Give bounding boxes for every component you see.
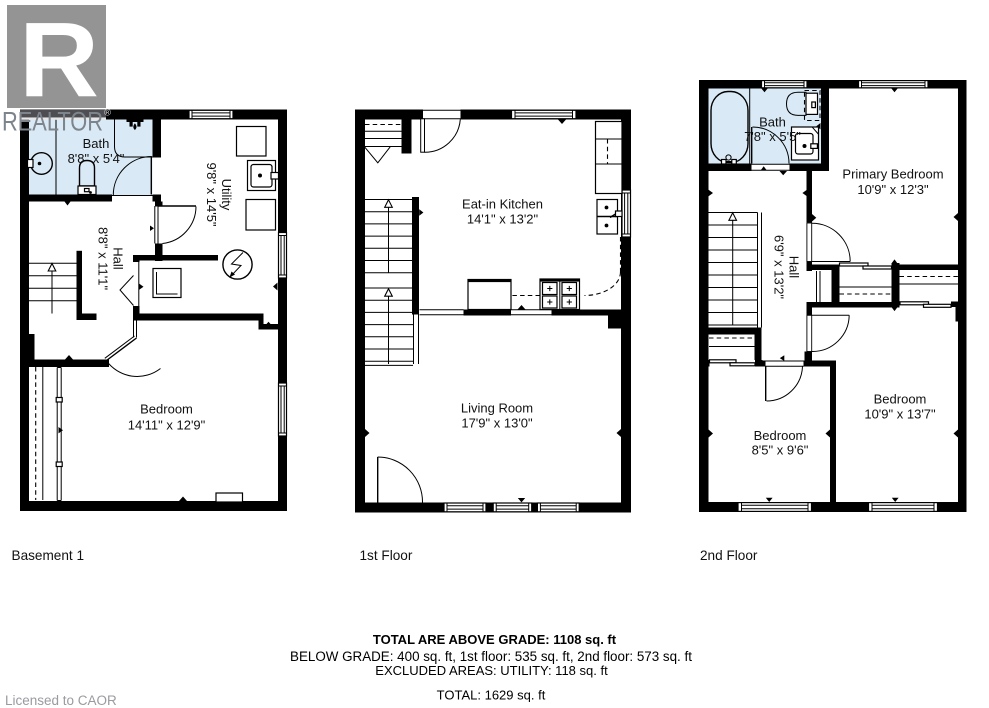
svg-text:1st Floor: 1st Floor — [360, 548, 413, 563]
svg-text:Bedroom: Bedroom — [140, 402, 193, 417]
svg-text:9'8" x 14'5": 9'8" x 14'5" — [204, 162, 219, 226]
svg-text:R: R — [19, 1, 99, 119]
svg-text:10'9" x 12'3": 10'9" x 12'3" — [857, 182, 929, 197]
svg-text:2nd Floor: 2nd Floor — [700, 548, 758, 563]
svg-text:Utility: Utility — [219, 179, 234, 211]
svg-text:®: ® — [104, 108, 111, 119]
svg-text:Bedroom: Bedroom — [754, 428, 807, 443]
svg-text:8'5" x 9'6": 8'5" x 9'6" — [752, 443, 809, 458]
svg-text:Living Room: Living Room — [461, 401, 533, 416]
svg-text:EXCLUDED AREAS: UTILITY: 118 s: EXCLUDED AREAS: UTILITY: 118 sq. ft — [375, 663, 608, 678]
svg-text:Basement 1: Basement 1 — [12, 548, 85, 563]
svg-text:Primary Bedroom: Primary Bedroom — [842, 167, 943, 182]
svg-text:Bedroom: Bedroom — [874, 392, 927, 407]
svg-text:Hall: Hall — [111, 247, 126, 270]
svg-text:8'8" x 11'1": 8'8" x 11'1" — [96, 227, 111, 290]
svg-text:BELOW GRADE: 400 sq. ft, 1st f: BELOW GRADE: 400 sq. ft, 1st floor: 535 … — [290, 649, 692, 664]
svg-text:Bath: Bath — [759, 115, 786, 130]
svg-text:10'9" x 13'7": 10'9" x 13'7" — [864, 407, 936, 422]
svg-text:17'9" x 13'0": 17'9" x 13'0" — [461, 416, 533, 431]
svg-text:TOTAL: 1629 sq. ft: TOTAL: 1629 sq. ft — [437, 688, 546, 703]
svg-text:14'11" x 12'9": 14'11" x 12'9" — [128, 418, 206, 433]
svg-text:REALTOR: REALTOR — [2, 107, 103, 137]
svg-text:6'9" x 13'2": 6'9" x 13'2" — [772, 235, 787, 299]
svg-text:14'1" x 13'2": 14'1" x 13'2" — [467, 212, 539, 227]
svg-text:Licensed to CAOR: Licensed to CAOR — [5, 693, 117, 708]
svg-text:TOTAL ARE ABOVE GRADE: 1108 sq: TOTAL ARE ABOVE GRADE: 1108 sq. ft — [373, 632, 617, 647]
svg-text:Hall: Hall — [787, 256, 802, 279]
svg-text:8'8" x 5'4": 8'8" x 5'4" — [68, 151, 125, 166]
svg-text:Eat-in Kitchen: Eat-in Kitchen — [462, 197, 543, 212]
svg-text:Bath: Bath — [83, 136, 110, 151]
svg-text:7'8" x 5'5": 7'8" x 5'5" — [744, 129, 801, 144]
